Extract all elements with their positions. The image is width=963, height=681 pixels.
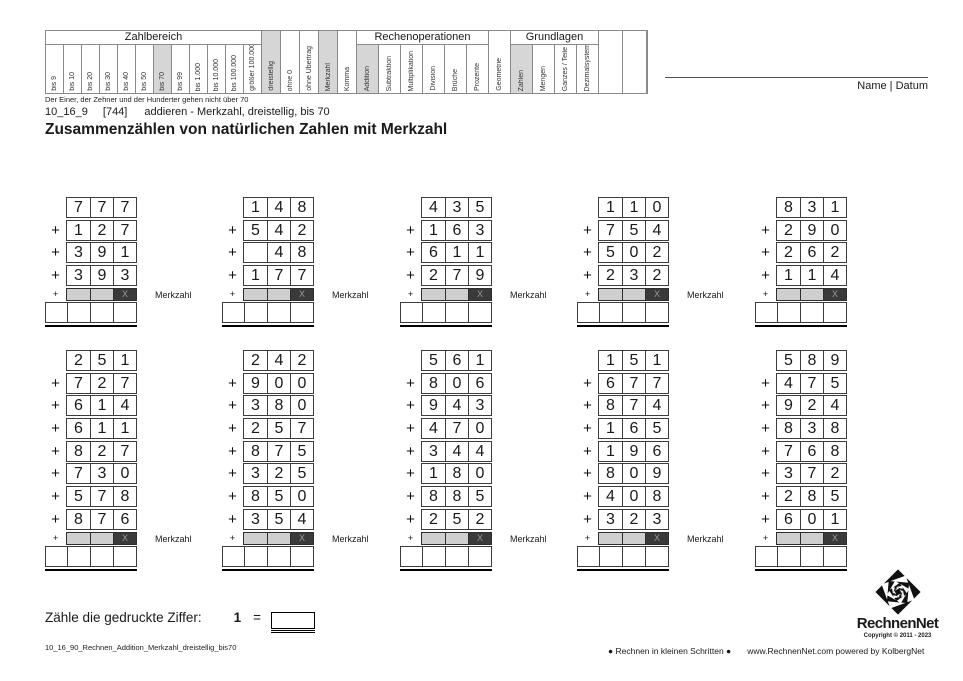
merkzahl-input-cell[interactable] <box>800 289 823 300</box>
plus-sign: + <box>222 220 243 241</box>
addend-digits: 391 <box>66 242 137 263</box>
plus-sign: + <box>755 441 776 462</box>
addend-row: +323 <box>577 509 669 530</box>
digit-cell: 3 <box>468 396 491 415</box>
addend-digits: 601 <box>776 509 847 530</box>
digit-cell: 6 <box>777 510 800 529</box>
merkzahl-input-cell[interactable] <box>90 289 113 300</box>
digit-cell: 9 <box>244 374 267 393</box>
digit-cell: 7 <box>599 221 622 240</box>
digit-cell: 6 <box>645 442 668 461</box>
addend-digits: 768 <box>776 441 847 462</box>
merkzahl-blocked-cell: X <box>113 289 136 300</box>
digit-cell: 1 <box>113 243 136 262</box>
digit-cell: 3 <box>800 198 823 217</box>
addend-digits: 730 <box>66 463 137 484</box>
plus-sign: + <box>222 486 243 507</box>
merkzahl-row: +X <box>755 532 847 545</box>
matrix-column: Prozente <box>467 45 489 93</box>
worksheet-code: 10_16_9 <box>45 106 88 118</box>
count-task-equals: = <box>253 610 261 625</box>
matrix-column: Zahlen <box>511 45 533 93</box>
matrix-column: Merkzahl <box>319 31 338 93</box>
merkzahl-blocked-cell: X <box>290 289 313 300</box>
matrix-column-label: Addition <box>364 66 371 93</box>
digit-cell: 5 <box>468 487 491 506</box>
addend-digits: 614 <box>66 395 137 416</box>
result-underline <box>45 569 137 572</box>
digit-cell: 8 <box>800 487 823 506</box>
merkzahl-label: Merkzahl <box>332 290 369 300</box>
addend-digits: 408 <box>598 486 669 507</box>
addend-row: +354 <box>222 509 314 530</box>
addend-row: +262 <box>755 242 847 263</box>
addend-row: +827 <box>45 441 137 462</box>
matrix-group-header: Grundlagen <box>511 31 599 45</box>
plus-sign: + <box>222 509 243 530</box>
merkzahl-input-cell[interactable] <box>622 289 645 300</box>
answer-cell[interactable] <box>401 547 422 566</box>
digit-cell: 7 <box>622 396 645 415</box>
digit-cell: 7 <box>113 221 136 240</box>
digit-cell: 5 <box>267 510 290 529</box>
addend-row: +727 <box>45 373 137 394</box>
matrix-column-label: Dezimalsystem <box>584 45 591 93</box>
footer-text: ● Rechnen in kleinen Schritten ● www.Rec… <box>608 646 928 656</box>
digit-cell: 8 <box>445 487 468 506</box>
matrix-column: bis 30 <box>100 45 118 93</box>
merkzahl-input-cell[interactable] <box>244 289 267 300</box>
answer-cell[interactable] <box>445 303 468 322</box>
digit-cell: 7 <box>800 464 823 483</box>
addend-row: 561 <box>400 350 492 371</box>
answer-cell[interactable] <box>468 547 492 566</box>
plus-sign: + <box>755 486 776 507</box>
problem-block: 777+127+391+393+X <box>45 197 137 327</box>
merkzahl-input-cell[interactable] <box>599 533 622 544</box>
plus-sign: + <box>45 265 66 286</box>
addend-digits: 344 <box>421 441 492 462</box>
merkzahl-input-cell[interactable] <box>267 533 290 544</box>
merkzahl-input-cell[interactable] <box>90 533 113 544</box>
addend-row: +876 <box>45 509 137 530</box>
plus-sign <box>222 350 243 371</box>
digit-cell: 6 <box>800 442 823 461</box>
plus-sign: + <box>45 441 66 462</box>
digit-cell: 7 <box>445 419 468 438</box>
answer-cell[interactable] <box>599 547 622 566</box>
digit-cell: 1 <box>777 266 800 285</box>
digit-cell: 4 <box>267 221 290 240</box>
matrix-column: Brüche <box>445 45 467 93</box>
digit-cell: 2 <box>622 510 645 529</box>
matrix-column-label: Subtraktion <box>386 56 393 93</box>
addend-row: +285 <box>755 486 847 507</box>
digit-cell: 7 <box>290 419 313 438</box>
digit-cell: 1 <box>823 198 846 217</box>
digit-cell: 3 <box>422 442 445 461</box>
digit-cell: 2 <box>422 266 445 285</box>
plus-sign <box>577 197 598 218</box>
plus-sign: + <box>577 463 598 484</box>
digit-cell: 8 <box>823 419 846 438</box>
addend-row: +177 <box>222 265 314 286</box>
digit-cell: 5 <box>244 221 267 240</box>
addend-digits: 611 <box>66 418 137 439</box>
answer-cell[interactable] <box>445 547 468 566</box>
plus-sign: + <box>400 373 421 394</box>
plus-sign: + <box>577 532 598 545</box>
digit-cell: 5 <box>468 198 491 217</box>
digit-cell: 6 <box>67 419 90 438</box>
plus-sign: + <box>45 532 66 545</box>
matrix-column-label: bis 10.000 <box>213 59 220 93</box>
digit-cell: 7 <box>113 374 136 393</box>
plus-sign <box>577 350 598 371</box>
matrix-column-label: bis 40 <box>123 72 130 93</box>
addend-row: +380 <box>222 395 314 416</box>
answer-cell[interactable] <box>90 547 113 566</box>
addend-digits: 589 <box>776 350 847 371</box>
answer-cell[interactable] <box>223 547 244 566</box>
digit-cell: 5 <box>823 374 846 393</box>
matrix-column <box>623 31 647 93</box>
digit-cell: 6 <box>622 419 645 438</box>
matrix-column-label: bis 20 <box>87 72 94 93</box>
digit-cell: 0 <box>468 419 491 438</box>
digit-cell: 7 <box>113 198 136 217</box>
matrix-column: ohne 0 <box>281 31 300 93</box>
merkzahl-cells: X <box>421 532 492 545</box>
digit-cell: 0 <box>622 243 645 262</box>
addend-row: 242 <box>222 350 314 371</box>
answer-cell[interactable] <box>622 547 645 566</box>
merkzahl-blocked-cell: X <box>823 289 846 300</box>
digit-cell: 0 <box>445 374 468 393</box>
plus-sign: + <box>755 265 776 286</box>
digit-cell: 1 <box>422 221 445 240</box>
answer-cell[interactable] <box>267 303 290 322</box>
answer-cell[interactable] <box>113 303 137 322</box>
plus-sign: + <box>577 288 598 301</box>
digit-cell: 7 <box>113 442 136 461</box>
answer-cell[interactable] <box>756 303 777 322</box>
matrix-column-label: bis 9 <box>51 76 58 93</box>
answer-cell[interactable] <box>645 303 669 322</box>
merkzahl-blocked-cell: X <box>468 289 491 300</box>
answer-cell[interactable] <box>800 547 823 566</box>
answer-cell[interactable] <box>468 303 492 322</box>
answer-cell[interactable] <box>777 547 800 566</box>
plus-sign: + <box>400 395 421 416</box>
answer-cell[interactable] <box>46 303 67 322</box>
count-task: Zähle die gedruckte Ziffer: 1 = <box>45 610 315 633</box>
answer-row <box>755 546 847 567</box>
merkzahl-input-cell[interactable] <box>599 289 622 300</box>
addend-row: +252 <box>400 509 492 530</box>
digit-cell: 3 <box>468 221 491 240</box>
addend-digits: 290 <box>776 220 847 241</box>
digit-cell: 2 <box>67 351 90 370</box>
addend-digits: 110 <box>598 197 669 218</box>
addend-digits: 677 <box>598 373 669 394</box>
matrix-column-label: Geometrie <box>496 58 503 93</box>
footer-slogan: ● Rechnen in kleinen Schritten ● <box>608 646 731 656</box>
addend-row: +279 <box>400 265 492 286</box>
addend-digits: 151 <box>598 350 669 371</box>
addend-row: +470 <box>400 418 492 439</box>
digit-cell: 2 <box>90 374 113 393</box>
addend-digits: 251 <box>66 350 137 371</box>
result-underline <box>222 325 314 328</box>
addend-row: +408 <box>577 486 669 507</box>
digit-cell: 3 <box>622 266 645 285</box>
merkzahl-input-cell[interactable] <box>67 289 90 300</box>
answer-cell[interactable] <box>401 303 422 322</box>
digit-cell: 8 <box>422 487 445 506</box>
digit-cell: 0 <box>622 464 645 483</box>
digit-cell: 7 <box>67 198 90 217</box>
answer-row <box>577 546 669 567</box>
digit-cell: 1 <box>599 419 622 438</box>
digit-cell: 7 <box>90 510 113 529</box>
merkzahl-cells: X <box>243 288 314 301</box>
matrix-column: bis 20 <box>82 45 100 93</box>
digit-cell: 5 <box>422 351 445 370</box>
answer-cell[interactable] <box>578 303 599 322</box>
merkzahl-input-cell[interactable] <box>445 289 468 300</box>
answer-row <box>222 546 314 567</box>
digit-cell: 5 <box>267 487 290 506</box>
logo-copyright: Copyright © 2011 - 2023 <box>845 633 950 639</box>
answer-cell[interactable] <box>823 547 847 566</box>
addend-digits: 475 <box>776 373 847 394</box>
addend-digits: 578 <box>66 486 137 507</box>
addend-digits: 435 <box>421 197 492 218</box>
answer-row <box>400 546 492 567</box>
digit-cell <box>244 243 267 262</box>
matrix-column: Dezimalsystem <box>577 45 599 93</box>
merkzahl-input-cell[interactable] <box>267 289 290 300</box>
answer-cell[interactable] <box>422 547 445 566</box>
answer-cell[interactable] <box>267 547 290 566</box>
digit-cell: 2 <box>90 221 113 240</box>
merkzahl-input-cell[interactable] <box>777 289 800 300</box>
addend-digits: 502 <box>598 242 669 263</box>
plus-sign: + <box>755 288 776 301</box>
digit-cell: 2 <box>244 351 267 370</box>
addend-row: +290 <box>755 220 847 241</box>
digit-cell: 8 <box>267 396 290 415</box>
plus-sign: + <box>577 441 598 462</box>
worksheet-topic: addieren - Merkzahl, dreistellig, bis 70 <box>144 106 329 118</box>
merkzahl-input-cell[interactable] <box>244 533 267 544</box>
merkzahl-label: Merkzahl <box>510 534 547 544</box>
digit-cell: 9 <box>468 266 491 285</box>
answer-cell[interactable] <box>756 547 777 566</box>
plus-sign <box>755 350 776 371</box>
addend-digits: 470 <box>421 418 492 439</box>
digit-cell: 4 <box>445 396 468 415</box>
answer-cell[interactable] <box>67 303 90 322</box>
plus-sign: + <box>222 373 243 394</box>
addend-digits: 727 <box>66 373 137 394</box>
result-underline <box>45 325 137 328</box>
digit-cell: 1 <box>599 442 622 461</box>
addend-digits: 372 <box>776 463 847 484</box>
addend-digits: 838 <box>776 418 847 439</box>
addend-digits: 48 <box>243 242 314 263</box>
digit-cell: 2 <box>823 243 846 262</box>
digit-cell: 8 <box>244 487 267 506</box>
matrix-column: Multiplikation <box>401 45 423 93</box>
worksheet-title: Zusammenzählen von natürlichen Zahlen mi… <box>45 121 447 139</box>
digit-cell: 8 <box>113 487 136 506</box>
addend-row: 435 <box>400 197 492 218</box>
plus-sign: + <box>577 418 598 439</box>
topic-matrix: ZahlbereichRechenoperationenGrundlagenbi… <box>45 30 648 94</box>
count-answer-box[interactable] <box>271 612 315 629</box>
problem-block: 435+163+611+279+X <box>400 197 492 327</box>
merkzahl-input-cell[interactable] <box>67 533 90 544</box>
answer-cell[interactable] <box>244 547 267 566</box>
addend-digits: 279 <box>421 265 492 286</box>
addend-digits: 232 <box>598 265 669 286</box>
digit-cell: 5 <box>645 419 668 438</box>
merkzahl-blocked-cell: X <box>645 289 668 300</box>
addend-row: +768 <box>755 441 847 462</box>
merkzahl-input-cell[interactable] <box>422 533 445 544</box>
merkzahl-cells: X <box>66 288 137 301</box>
answer-cell[interactable] <box>290 303 314 322</box>
addend-row: +924 <box>755 395 847 416</box>
digit-cell: 2 <box>468 510 491 529</box>
merkzahl-row: +X <box>400 532 492 545</box>
answer-cell[interactable] <box>290 547 314 566</box>
digit-cell: 1 <box>90 396 113 415</box>
matrix-column-label: Mengen <box>540 66 547 93</box>
plus-sign: + <box>45 373 66 394</box>
digit-cell: 4 <box>290 510 313 529</box>
answer-cell[interactable] <box>46 547 67 566</box>
plus-sign: + <box>577 373 598 394</box>
addend-row: +943 <box>400 395 492 416</box>
addend-row: +163 <box>400 220 492 241</box>
merkzahl-blocked-cell: X <box>823 533 846 544</box>
worksheet-ref: [744] <box>103 106 127 118</box>
answer-cell[interactable] <box>422 303 445 322</box>
addend-digits: 148 <box>243 197 314 218</box>
plus-sign: + <box>400 532 421 545</box>
matrix-column: Mengen <box>533 45 555 93</box>
merkzahl-input-cell[interactable] <box>800 533 823 544</box>
answer-cell[interactable] <box>645 547 669 566</box>
addend-row: +114 <box>755 265 847 286</box>
digit-cell: 1 <box>67 221 90 240</box>
answer-cell[interactable] <box>777 303 800 322</box>
plus-sign: + <box>577 486 598 507</box>
merkzahl-label: Merkzahl <box>155 290 192 300</box>
answer-cell[interactable] <box>90 303 113 322</box>
digit-cell: 1 <box>422 464 445 483</box>
digit-cell: 9 <box>90 266 113 285</box>
answer-cell[interactable] <box>578 547 599 566</box>
matrix-column-label: bis 99 <box>177 72 184 93</box>
digit-cell: 7 <box>267 266 290 285</box>
digit-cell: 0 <box>290 374 313 393</box>
merkzahl-input-cell[interactable] <box>422 289 445 300</box>
digit-cell: 6 <box>422 243 445 262</box>
merkzahl-input-cell[interactable] <box>622 533 645 544</box>
matrix-column: Ganzes / Teile <box>555 45 577 93</box>
matrix-column-label: bis 70 <box>159 72 166 93</box>
digit-cell: 3 <box>777 464 800 483</box>
problem-block: 831+290+262+114+X <box>755 197 847 327</box>
answer-cell[interactable] <box>823 303 847 322</box>
digit-cell: 5 <box>267 419 290 438</box>
name-date-line <box>665 77 928 78</box>
answer-cell[interactable] <box>800 303 823 322</box>
matrix-column-label: größer 100.000 <box>249 45 256 93</box>
plus-sign: + <box>577 220 598 241</box>
addend-digits: 323 <box>598 509 669 530</box>
answer-cell[interactable] <box>622 303 645 322</box>
addend-row: 589 <box>755 350 847 371</box>
addend-digits: 827 <box>66 441 137 462</box>
digit-cell: 8 <box>823 442 846 461</box>
matrix-column: bis 1.000 <box>190 45 208 93</box>
addend-row: +874 <box>577 395 669 416</box>
merkzahl-input-cell[interactable] <box>777 533 800 544</box>
matrix-column: Addition <box>357 45 379 93</box>
addend-row: +885 <box>400 486 492 507</box>
answer-cell[interactable] <box>244 303 267 322</box>
addend-row: +542 <box>222 220 314 241</box>
digit-cell: 2 <box>777 487 800 506</box>
digit-cell: 8 <box>67 510 90 529</box>
addend-row: +232 <box>577 265 669 286</box>
worksheet-filename: 10_16_90_Rechnen_Addition_Merkzahl_dreis… <box>45 643 236 652</box>
merkzahl-cells: X <box>66 532 137 545</box>
digit-cell: 4 <box>267 351 290 370</box>
addend-digits: 380 <box>243 395 314 416</box>
digit-cell: 2 <box>800 396 823 415</box>
addend-row: +677 <box>577 373 669 394</box>
digit-cell: 2 <box>823 464 846 483</box>
addend-digits: 285 <box>776 486 847 507</box>
merkzahl-input-cell[interactable] <box>445 533 468 544</box>
rechnennet-logo: RechnenNet Copyright © 2011 - 2023 <box>845 569 950 639</box>
answer-row <box>45 302 137 323</box>
answer-cell[interactable] <box>223 303 244 322</box>
digit-cell: 5 <box>67 487 90 506</box>
digit-cell: 6 <box>599 374 622 393</box>
matrix-note: Der Einer, der Zehner und der Hunderter … <box>45 95 248 104</box>
digit-cell: 5 <box>445 510 468 529</box>
addend-row: +325 <box>222 463 314 484</box>
answer-cell[interactable] <box>113 547 137 566</box>
matrix-column-label: Brüche <box>452 69 459 93</box>
result-underline <box>400 325 492 328</box>
merkzahl-cells: X <box>243 532 314 545</box>
addend-digits: 611 <box>421 242 492 263</box>
addend-row: 831 <box>755 197 847 218</box>
matrix-column-label: Komma <box>344 67 351 93</box>
matrix-column-label: bis 100.000 <box>231 55 238 93</box>
answer-cell[interactable] <box>599 303 622 322</box>
plus-sign: + <box>45 288 66 301</box>
answer-cell[interactable] <box>67 547 90 566</box>
